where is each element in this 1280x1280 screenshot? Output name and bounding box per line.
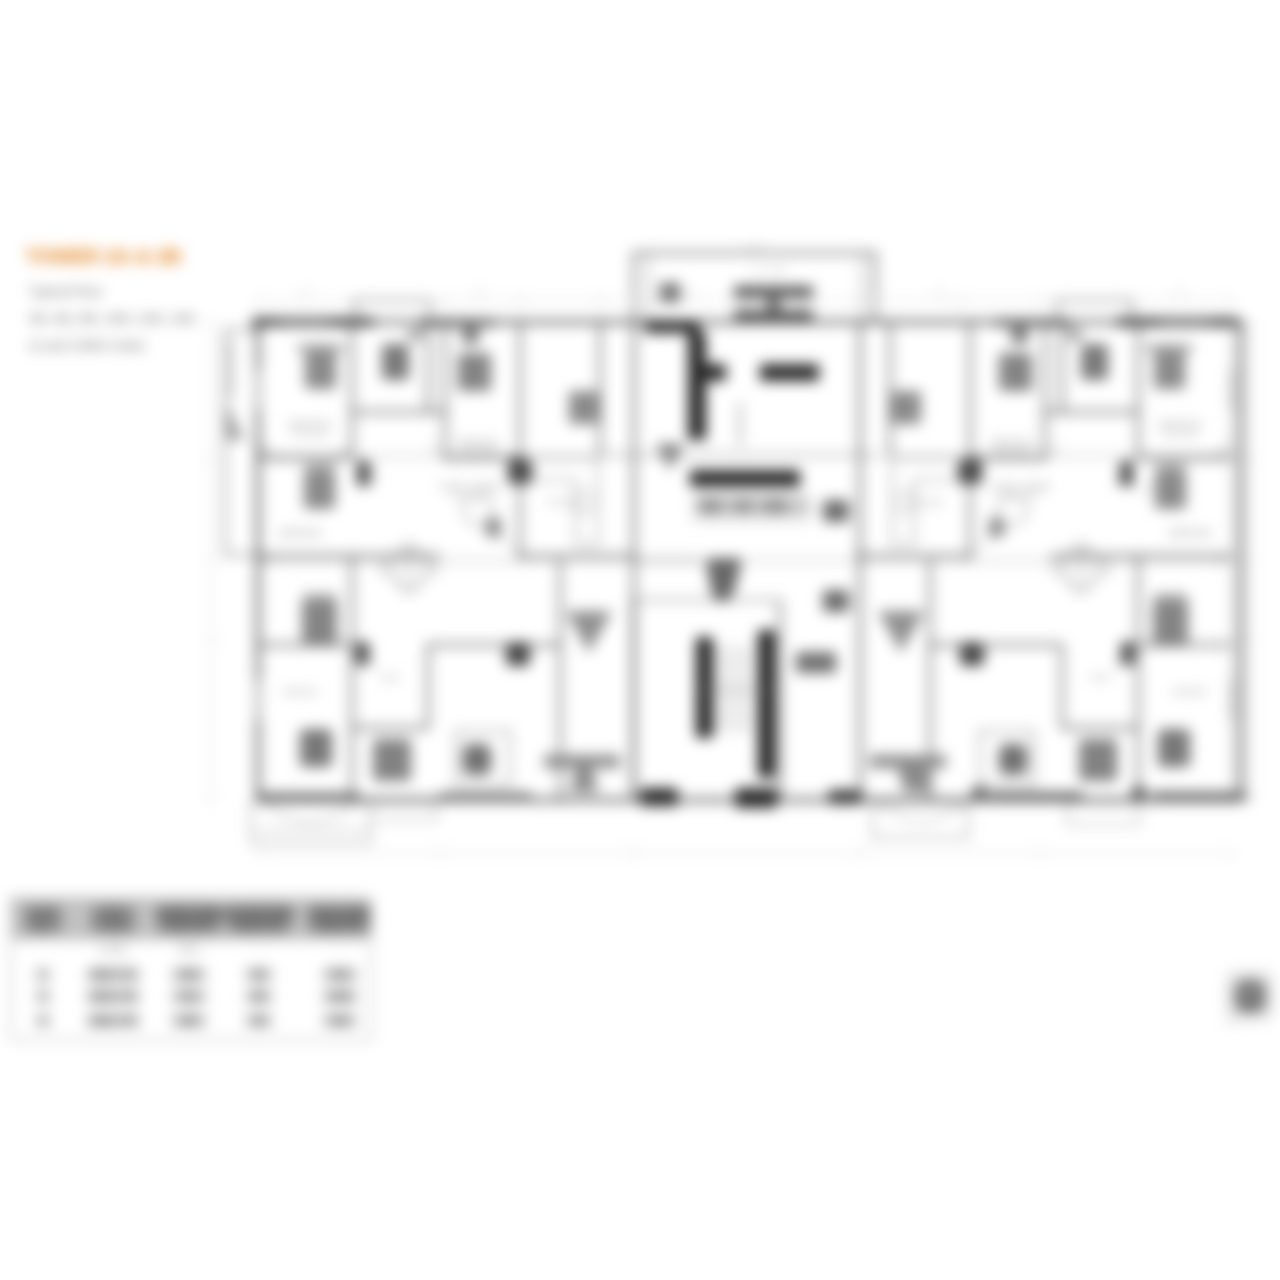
svg-text:--: -- [256,943,262,952]
svg-text:LIVING / DINING: LIVING / DINING [990,483,1051,492]
svg-text:1202 + T1: 1202 + T1 [90,970,136,981]
svg-text:11'0" X 10'0": 11'0" X 10'0" [995,451,1028,457]
svg-text:940: 940 [332,970,349,981]
svg-text:BEDROOM: BEDROOM [289,421,331,430]
svg-text:12'-6": 12'-6" [297,291,312,297]
svg-text:845: 845 [181,970,198,981]
svg-text:LIFT LOBBY: LIFT LOBBY [752,267,789,274]
svg-text:BALCONY AREA: BALCONY AREA [221,908,297,919]
svg-text:BEDROOM: BEDROOM [1169,529,1211,538]
svg-text:3: 3 [40,1016,45,1026]
svg-text:12'-6": 12'-6" [932,291,947,297]
svg-text:(SQ. FT.): (SQ. FT.) [240,922,279,933]
svg-text:BEDROOM: BEDROOM [457,439,499,448]
svg-text:(SQ. FT.): (SQ. FT.) [170,922,209,933]
svg-text:KITCHEN: KITCHEN [548,500,577,507]
svg-text:BEDROOM: BEDROOM [283,689,317,696]
svg-text:12'0" X 10'6": 12'0" X 10'6" [293,434,327,440]
svg-text:12'-6": 12'-6" [1172,291,1187,297]
svg-text:UNIT: UNIT [102,908,124,919]
svg-text:BEDROOM: BEDROOM [1173,689,1207,696]
svg-text:TYPE: TYPE [101,922,126,933]
svg-text:ss: ss [1226,1022,1234,1029]
svg-text:--: -- [337,943,343,952]
svg-text:BEDROOM: BEDROOM [991,439,1033,448]
svg-text:12'-6": 12'-6" [472,291,487,297]
svg-text:11'0" X 10'0": 11'0" X 10'0" [461,451,494,457]
svg-text:LIVING / DINING: LIVING / DINING [440,483,501,492]
svg-text:TOILET: TOILET [380,676,401,682]
svg-text:1: 1 [40,970,45,980]
svg-text:(2 BHK): (2 BHK) [99,945,128,954]
svg-text:12'0" X 10'6": 12'0" X 10'6" [1163,434,1197,440]
svg-text:TOWER 2A & 2B: TOWER 2A & 2B [26,246,182,268]
svg-text:845: 845 [181,1016,198,1027]
svg-text:KITCHEN: KITCHEN [914,500,943,507]
svg-text:24'-6": 24'-6" [747,244,764,251]
svg-text:BEDROOM: BEDROOM [1159,421,1201,430]
svg-text:912: 912 [181,992,198,1003]
svg-text:95: 95 [253,1016,265,1027]
svg-text:88: 88 [253,992,265,1003]
svg-text:Typical Floor: Typical Floor [29,284,103,299]
svg-text:95: 95 [253,970,265,981]
svg-text:TOILET: TOILET [1090,676,1111,682]
svg-text:1000: 1000 [329,992,352,1003]
svg-text:AREA: AREA [178,945,200,954]
svg-text:NO.: NO. [35,922,52,933]
svg-text:940: 940 [332,1016,349,1027]
svg-text:1202 + T3: 1202 + T3 [90,1016,136,1027]
svg-text:BEDROOM: BEDROOM [279,529,321,538]
svg-text:(2 and 3 BHK Units): (2 and 3 BHK Units) [29,338,145,353]
svg-text:4th, 6th, 8th, 10th, 12th, 14t: 4th, 6th, 8th, 10th, 12th, 14th [29,311,195,326]
svg-text:(SQ. FT.): (SQ. FT.) [321,922,360,933]
svg-text:2: 2 [40,992,45,1002]
svg-text:TOTAL AREA: TOTAL AREA [310,908,370,919]
svg-text:LOBBY: LOBBY [734,500,756,507]
svg-text:FLAT: FLAT [31,908,55,919]
svg-text:12'-6": 12'-6" [682,291,697,297]
svg-text:1304 + T2: 1304 + T2 [90,992,136,1003]
svg-text:CARPET AREA: CARPET AREA [155,908,223,919]
